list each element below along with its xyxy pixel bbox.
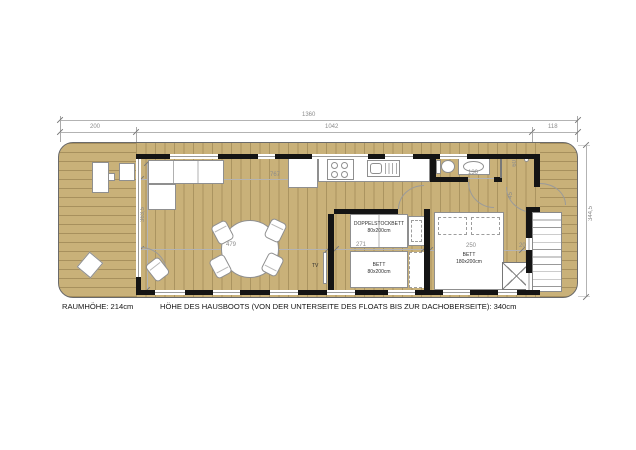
- sofa: [148, 160, 224, 184]
- wall-kids-master: [424, 209, 430, 290]
- caption-boat-height: HÖHE DES HAUSBOOTS (VON DER UNTERSEITE D…: [160, 302, 516, 311]
- double-bed-label: BETT 180x200cm: [434, 252, 504, 265]
- floor-plan-canvas: 1360 200 1042 118 344,5: [0, 0, 636, 450]
- wall-segment: [517, 290, 540, 295]
- window: [440, 154, 467, 159]
- wall-living-kids: [328, 214, 334, 290]
- dim-cabin-length: 1042: [323, 124, 340, 130]
- dim-living: 479: [226, 242, 236, 248]
- double-bed-size: 180x200cm: [456, 259, 482, 265]
- window: [327, 290, 355, 295]
- tick: [575, 129, 581, 135]
- window: [213, 290, 240, 295]
- stairs: [532, 212, 562, 292]
- caption-room-height: RAUMHÖHE: 214cm: [62, 302, 133, 311]
- deck-table: [92, 162, 109, 193]
- burner-icon: [331, 162, 338, 169]
- wall-segment: [275, 154, 312, 159]
- tick: [583, 294, 589, 300]
- single-bed-size: 80x200cm: [367, 269, 390, 275]
- single-bed-name: BETT: [373, 262, 386, 268]
- dim-line-segments: [60, 132, 578, 133]
- dim-line-kids: [336, 249, 424, 250]
- wall-segment: [467, 154, 540, 159]
- sofa-chaise: [148, 184, 176, 210]
- dim-bow-deck: 200: [88, 124, 102, 130]
- window: [388, 290, 415, 295]
- wall-segment: [240, 290, 270, 295]
- bunk-bed-label: DOPPELSTOCKBETT 80x200cm: [336, 221, 422, 234]
- tv-label: TV: [312, 263, 318, 270]
- dim-boat-width: 344,5: [588, 206, 594, 221]
- window: [385, 154, 413, 159]
- burner-icon: [331, 171, 338, 178]
- dim-kitchen-living: 767: [270, 172, 280, 178]
- dim-kids-room: 271: [356, 242, 366, 248]
- window: [443, 290, 470, 295]
- dim-stair-gap: 20: [519, 243, 526, 249]
- wall-segment: [534, 154, 540, 187]
- kitchen-tall-unit: [288, 154, 318, 188]
- burner-icon: [341, 162, 348, 169]
- wall-segment: [436, 177, 468, 182]
- sink-basin: [370, 163, 382, 174]
- window: [170, 154, 218, 159]
- dim-line-total: [60, 120, 578, 121]
- wall-segment: [218, 154, 258, 159]
- wall-kids-top: [334, 209, 398, 214]
- deck-table-knob: [108, 173, 115, 181]
- wall-segment: [368, 154, 385, 159]
- burner-icon: [341, 171, 348, 178]
- deck-stool-top: [119, 163, 135, 181]
- dim-master-room: 250: [466, 243, 476, 249]
- wall-segment: [415, 290, 443, 295]
- dim-line-width: [586, 145, 587, 297]
- pillow: [471, 217, 500, 235]
- toilet: [441, 160, 455, 173]
- dim-stern-deck: 118: [546, 124, 560, 130]
- window: [526, 238, 532, 250]
- pillow: [438, 217, 467, 235]
- wall-segment: [355, 290, 388, 295]
- window: [258, 154, 275, 159]
- window: [312, 154, 368, 159]
- bunk-bed-name: DOPPELSTOCKBETT: [354, 221, 404, 227]
- window: [155, 290, 185, 295]
- wall-segment: [136, 154, 170, 159]
- dim-bath: 130: [468, 170, 478, 176]
- double-bed-name: BETT: [463, 252, 476, 258]
- wall-segment: [470, 290, 498, 295]
- tick: [575, 117, 581, 123]
- wall-segment: [136, 290, 155, 295]
- wall-segment: [526, 250, 532, 273]
- window: [526, 273, 532, 290]
- window: [498, 290, 517, 295]
- dim-front-glazing: 363,5: [140, 207, 146, 222]
- single-bed-label: BETT 80x200cm: [350, 262, 408, 275]
- wall-segment: [413, 154, 440, 159]
- bunk-bed-size: 80x200cm: [367, 228, 390, 234]
- wall-segment: [526, 212, 532, 238]
- wall-segment: [298, 290, 327, 295]
- dim-entry: 45: [508, 192, 514, 199]
- dim-shower: 60: [512, 160, 518, 167]
- wall-segment: [136, 277, 141, 291]
- dim-total-length: 1360: [300, 112, 317, 118]
- sink-drainboard: [385, 163, 398, 174]
- tv: [323, 252, 327, 284]
- window: [270, 290, 298, 295]
- wall-segment: [185, 290, 213, 295]
